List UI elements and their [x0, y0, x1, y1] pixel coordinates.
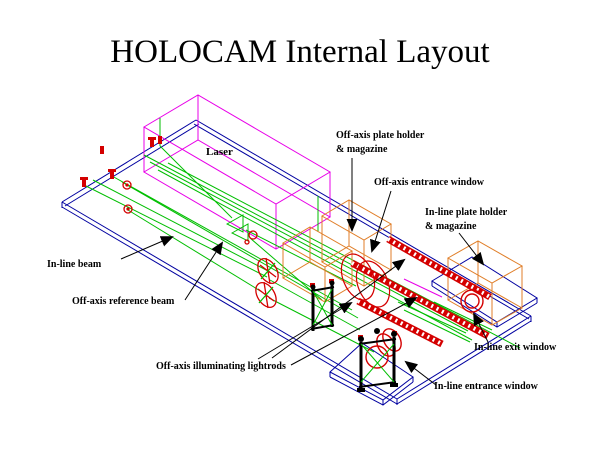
arrow-lightrod-3: [291, 298, 416, 365]
arrow-in-line-entrance-window: [406, 362, 436, 385]
entrance-window-circle: [366, 326, 405, 368]
off-axis-entrance-window-label: Off-axis entrance window: [374, 176, 484, 190]
arrow-off-axis-reference-beam: [185, 243, 222, 300]
in-line-beam-label: In-line beam: [47, 258, 101, 272]
beam-splitter-prism: [227, 215, 248, 241]
in-line-plate-holder-label-line2: & magazine: [425, 220, 507, 234]
off-axis-plate-holder-label: Off-axis plate holder & magazine: [336, 129, 424, 157]
off-axis-plate-holder-label-line2: & magazine: [336, 143, 424, 157]
entrance-platform: [330, 343, 413, 405]
in-line-plate-holder-label-line1: In-line plate holder: [425, 206, 507, 220]
in-line-exit-window-label: In-line exit window: [474, 341, 556, 355]
off-axis-illuminating-lightrods-label: Off-axis illuminating lightrods: [156, 360, 286, 374]
slide: HOLOCAM Internal Layout: [0, 0, 600, 450]
baseplate: [62, 120, 537, 405]
arrow-in-line-plate-holder: [459, 233, 483, 264]
lightrod-rails: [352, 239, 490, 344]
laser-box: [144, 95, 442, 297]
in-line-entrance-window-label: In-line entrance window: [434, 380, 538, 394]
off-axis-reference-beam-label: Off-axis reference beam: [72, 295, 174, 309]
in-line-plate-holder-label: In-line plate holder & magazine: [425, 206, 507, 234]
leader-arrows: [121, 158, 488, 385]
off-axis-plate-holder-label-line1: Off-axis plate holder: [336, 129, 424, 143]
laser-label: Laser: [206, 145, 233, 159]
off-axis-camera-assembly: [311, 281, 335, 332]
arrow-in-line-beam: [121, 237, 172, 259]
